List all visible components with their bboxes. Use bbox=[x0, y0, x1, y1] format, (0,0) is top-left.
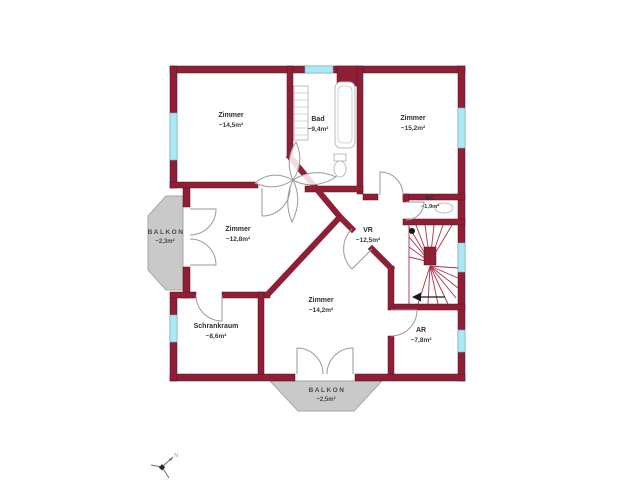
room-label-ar: AR ~7,8m² bbox=[411, 327, 433, 344]
svg-text:VR: VR bbox=[363, 227, 373, 234]
window-right-lower bbox=[458, 330, 465, 352]
room-label-zimmer-ne: Zimmer ~15,2m² bbox=[400, 115, 426, 132]
toilet bbox=[334, 154, 346, 177]
svg-text:~12,8m²: ~12,8m² bbox=[226, 236, 251, 243]
svg-text:Zimmer: Zimmer bbox=[308, 297, 334, 304]
door-zimmer-ne bbox=[380, 172, 403, 195]
diagonal-wall-se-a bbox=[340, 217, 352, 229]
svg-text:~9,4m²: ~9,4m² bbox=[308, 126, 330, 133]
door-schrankraum bbox=[196, 295, 222, 321]
room-label-zimmer-nw: Zimmer ~14,5m² bbox=[218, 112, 244, 129]
window-left-upper bbox=[170, 113, 177, 160]
stair-start-dot bbox=[409, 228, 415, 234]
room-label-vr: VR ~12,5m² bbox=[356, 227, 381, 244]
diagonal-wall-se-b bbox=[372, 249, 391, 268]
svg-text:Schrankraum: Schrankraum bbox=[194, 323, 239, 330]
stair-newel-wall bbox=[424, 247, 436, 265]
svg-text:BALKON: BALKON bbox=[309, 387, 346, 394]
floor-plan-canvas: Zimmer ~14,5m² Bad ~9,4m² Zimmer ~15,2m²… bbox=[0, 0, 640, 480]
door-zimmer-s bbox=[344, 229, 372, 269]
window-right-middle bbox=[458, 243, 465, 272]
diagonal-wall-sw bbox=[270, 217, 340, 292]
svg-text:Zimmer: Zimmer bbox=[225, 226, 251, 233]
hall-door-star bbox=[255, 142, 336, 222]
door-balkon-sued bbox=[297, 348, 353, 374]
svg-text:BALKON: BALKON bbox=[148, 229, 185, 236]
room-label-zimmer-w: Zimmer ~12,8m² bbox=[225, 226, 251, 243]
svg-text:~14,5m²: ~14,5m² bbox=[219, 122, 244, 129]
room-label-zimmer-s: Zimmer ~14,2m² bbox=[308, 297, 334, 314]
svg-text:~2,5m²: ~2,5m² bbox=[316, 396, 335, 403]
svg-text:~8,6m²: ~8,6m² bbox=[206, 333, 228, 340]
staircase bbox=[409, 225, 458, 304]
window-left-lower bbox=[170, 315, 177, 342]
radiator bbox=[294, 86, 308, 140]
svg-text:~7,8m²: ~7,8m² bbox=[411, 337, 433, 344]
svg-text:Zimmer: Zimmer bbox=[400, 115, 426, 122]
svg-text:~2,3m²: ~2,3m² bbox=[155, 238, 174, 245]
svg-text:~15,2m²: ~15,2m² bbox=[401, 125, 426, 132]
svg-text:Zimmer: Zimmer bbox=[218, 112, 244, 119]
compass-icon: N bbox=[151, 453, 178, 478]
svg-text:N: N bbox=[174, 453, 178, 459]
door-zimmer-w bbox=[262, 186, 290, 216]
room-label-schrankraum: Schrankraum ~8,6m² bbox=[194, 323, 239, 340]
window-top bbox=[305, 66, 333, 73]
svg-text:~12,5m²: ~12,5m² bbox=[356, 237, 381, 244]
svg-text:~1,9m²: ~1,9m² bbox=[421, 203, 440, 210]
window-right-upper bbox=[458, 108, 465, 148]
door-balkon-west bbox=[190, 209, 216, 265]
svg-text:~14,2m²: ~14,2m² bbox=[309, 307, 334, 314]
bathtub bbox=[335, 82, 355, 148]
svg-text:AR: AR bbox=[416, 327, 426, 334]
room-label-bad: Bad ~9,4m² bbox=[308, 116, 330, 133]
balcony-south bbox=[270, 381, 382, 411]
svg-text:WC: WC bbox=[425, 196, 436, 202]
svg-text:Bad: Bad bbox=[311, 116, 324, 123]
door-ar bbox=[391, 310, 417, 336]
